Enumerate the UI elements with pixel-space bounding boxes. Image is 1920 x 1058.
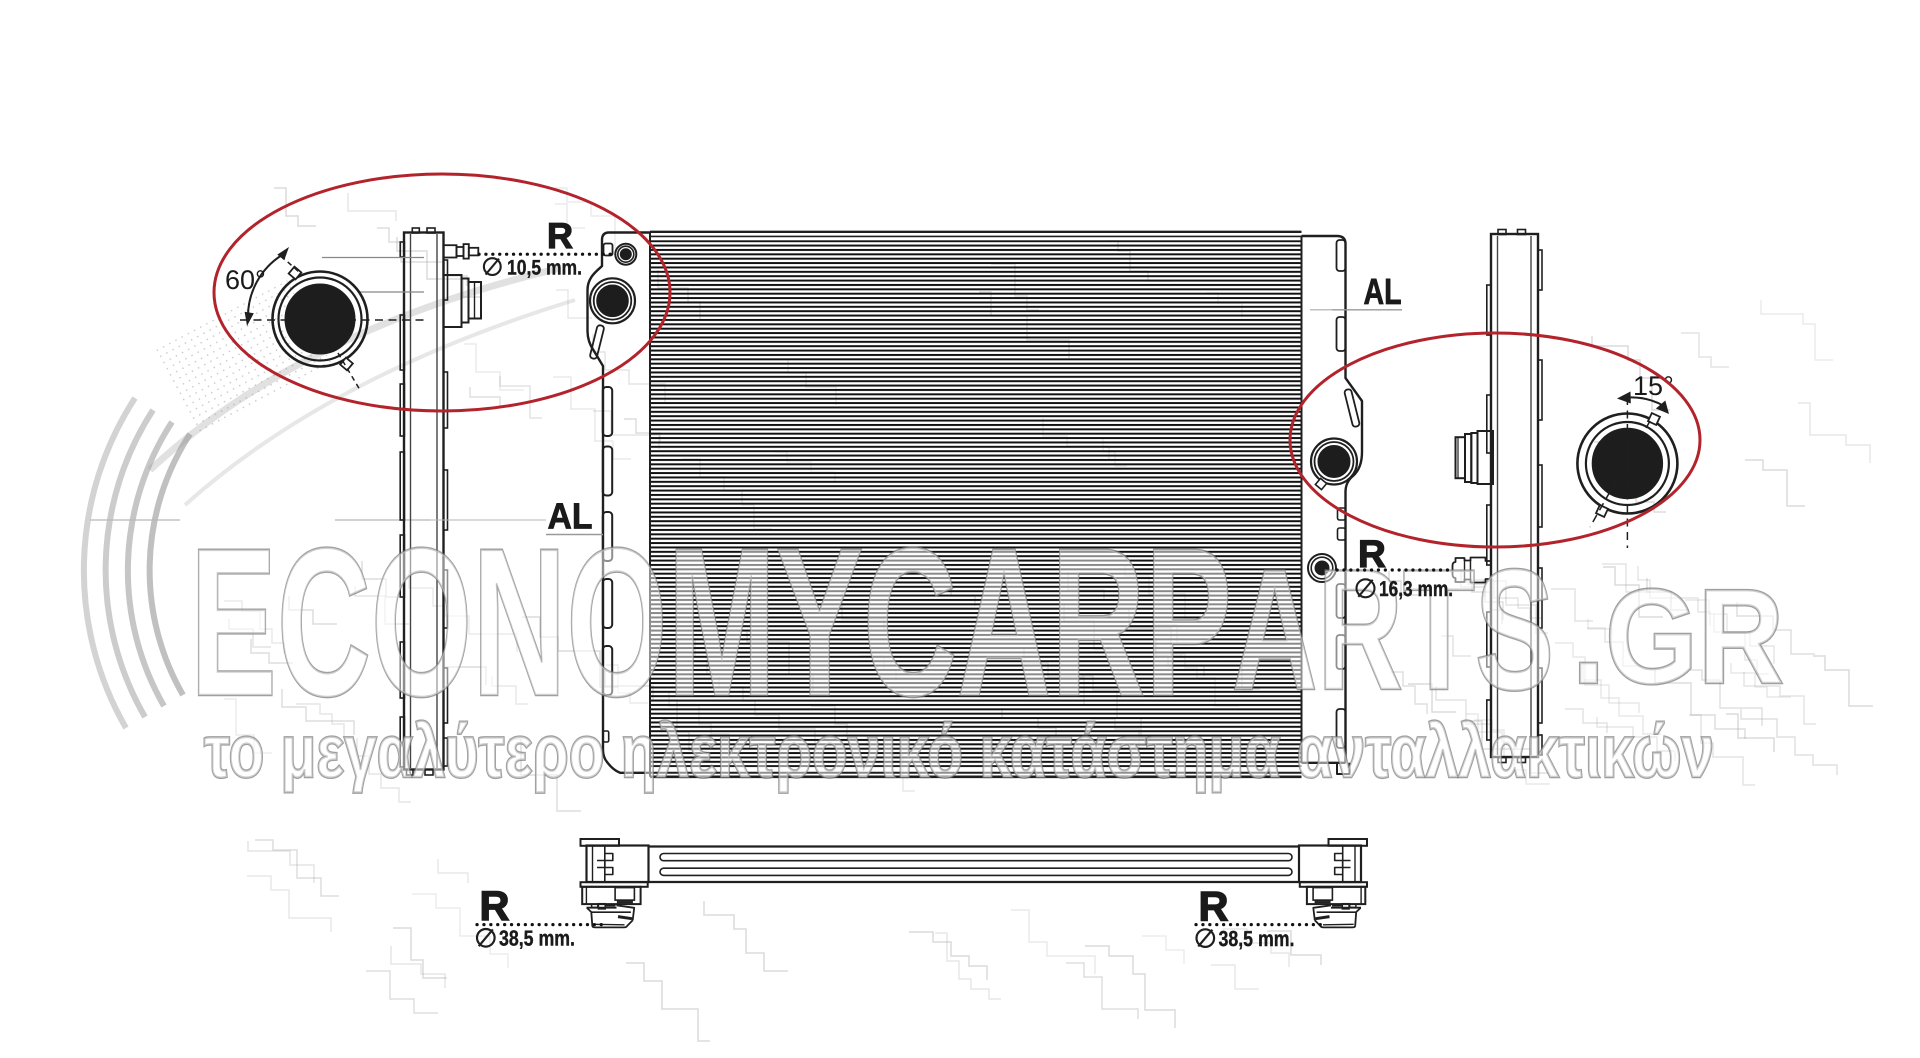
svg-text:το μεγαλύτερο ηλεκτρονικό κατά: το μεγαλύτερο ηλεκτρονικό κατάστημα αντα… <box>204 709 1714 793</box>
svg-text:R: R <box>1358 533 1386 576</box>
svg-text:60°: 60° <box>225 265 266 295</box>
svg-text:ARTS: ARTS <box>1232 534 1554 726</box>
svg-text:ECONOMYCARP: ECONOMYCARP <box>190 504 1232 740</box>
svg-text:16,3 mm.: 16,3 mm. <box>1379 577 1453 601</box>
svg-text:38,5 mm.: 38,5 mm. <box>1219 926 1295 951</box>
svg-text:AL: AL <box>548 495 593 536</box>
svg-text:38,5 mm.: 38,5 mm. <box>499 926 575 951</box>
svg-text:15°: 15° <box>1633 371 1674 401</box>
svg-text:.GR: .GR <box>1572 561 1784 712</box>
svg-text:10,5 mm.: 10,5 mm. <box>507 257 582 280</box>
svg-text:R: R <box>547 215 573 256</box>
svg-text:AL: AL <box>1364 271 1402 312</box>
svg-text:R: R <box>1199 883 1229 930</box>
svg-text:R: R <box>480 882 510 929</box>
